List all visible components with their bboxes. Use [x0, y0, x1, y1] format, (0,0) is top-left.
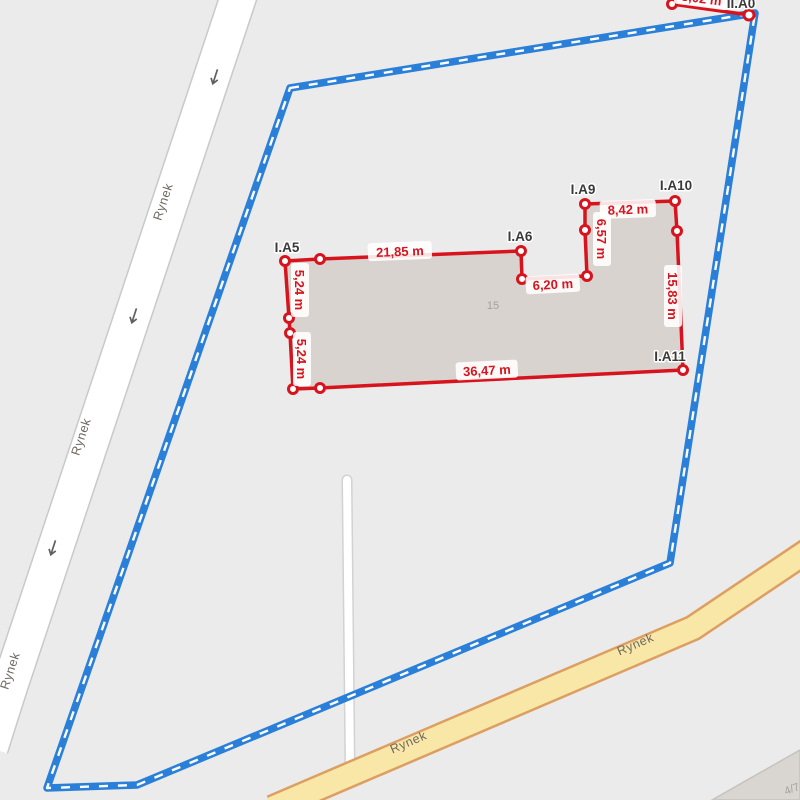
- point-label-ia10: I.A10: [660, 178, 692, 193]
- measurement-label-bottom: 36,47 m: [455, 360, 518, 381]
- vertex: [583, 272, 592, 281]
- svg-text:5,24 m: 5,24 m: [292, 270, 307, 310]
- svg-text:21,85 m: 21,85 m: [376, 243, 424, 260]
- measurement-label-ia9-step: 6,57 m: [593, 212, 611, 266]
- vertex-ia5: [281, 257, 290, 266]
- svg-text:36,47 m: 36,47 m: [463, 362, 511, 379]
- vertex: [673, 227, 682, 236]
- svg-text:5,24 m: 5,24 m: [294, 339, 309, 379]
- vertex: [316, 384, 325, 393]
- point-label-ia11: I.A11: [654, 349, 686, 364]
- vertex: [518, 275, 527, 284]
- building-number-label: 15: [487, 300, 499, 312]
- svg-text:6,20 m: 6,20 m: [532, 276, 573, 293]
- vertex-ia11: [679, 366, 688, 375]
- measurement-label-ia5-ia6: 21,85 m: [368, 241, 433, 262]
- measurement-label-ia10-ia11: 15,83 m: [664, 265, 682, 327]
- vertex-ia9: [581, 200, 590, 209]
- measurement-label-left-2: 5,24 m: [293, 332, 311, 386]
- point-label-ia9: I.A9: [571, 182, 596, 197]
- map-svg[interactable]: Rynek Rynek Rynek Rynek Rynek 4/7 15: [0, 0, 800, 800]
- footpath: [347, 480, 350, 766]
- point-label-iia0: II.A0: [727, 0, 756, 11]
- map-canvas[interactable]: Rynek Rynek Rynek Rynek Rynek 4/7 15: [0, 0, 800, 800]
- vertex-ia6: [517, 247, 526, 256]
- point-label-ia5: I.A5: [275, 240, 300, 255]
- point-label-ia6: I.A6: [508, 229, 533, 244]
- svg-text:8,42 m: 8,42 m: [607, 201, 648, 217]
- svg-text:6,57 m: 6,57 m: [594, 219, 609, 259]
- vertex: [581, 226, 590, 235]
- measurement-label-ia6-step: 6,20 m: [525, 274, 580, 295]
- measurement-label-ia9-ia10: 8,42 m: [600, 199, 657, 219]
- measurement-label-left-1: 5,24 m: [291, 263, 309, 317]
- vertex-ia10: [671, 197, 680, 206]
- svg-text:15,83 m: 15,83 m: [665, 272, 680, 320]
- vertex-iia0: [744, 10, 754, 20]
- vertex: [316, 255, 325, 264]
